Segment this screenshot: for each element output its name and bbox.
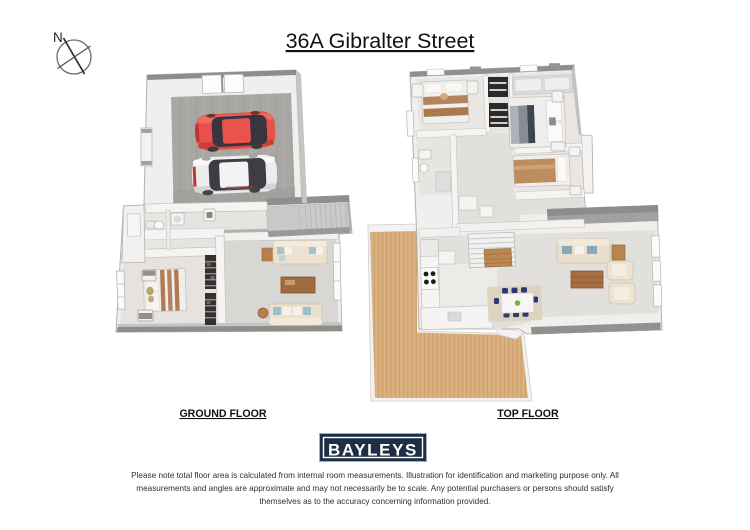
svg-text:measurements and angles are ap: measurements and angles are approximate …: [136, 484, 614, 493]
svg-text:TOP FLOOR: TOP FLOOR: [497, 408, 559, 420]
svg-text:Please note total floor area i: Please note total floor area is calculat…: [131, 471, 619, 480]
svg-text:BAYLEYS: BAYLEYS: [328, 441, 418, 460]
svg-text:GROUND FLOOR: GROUND FLOOR: [179, 408, 266, 420]
svg-text:themselves as to the accuracy: themselves as to the accuracy concerning…: [259, 497, 490, 506]
svg-text:N: N: [53, 30, 63, 45]
svg-text:36A Gibralter Street: 36A Gibralter Street: [286, 29, 475, 53]
